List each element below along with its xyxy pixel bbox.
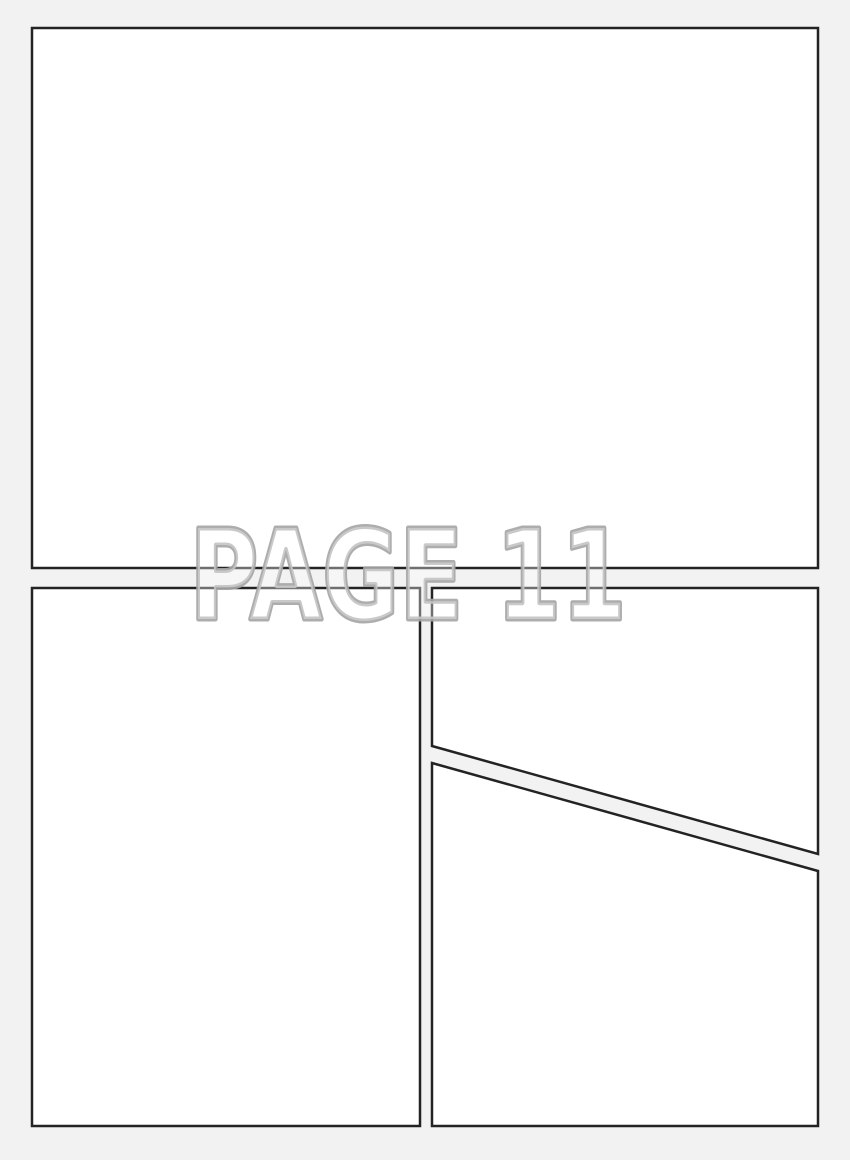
comic-page-template: PAGE 11 [0,0,850,1160]
panel-top [32,28,818,568]
panel-bottom-left [32,588,420,1126]
page-number-watermark: PAGE 11 [190,504,627,649]
comic-page-canvas: PAGE 11 [0,0,850,1160]
